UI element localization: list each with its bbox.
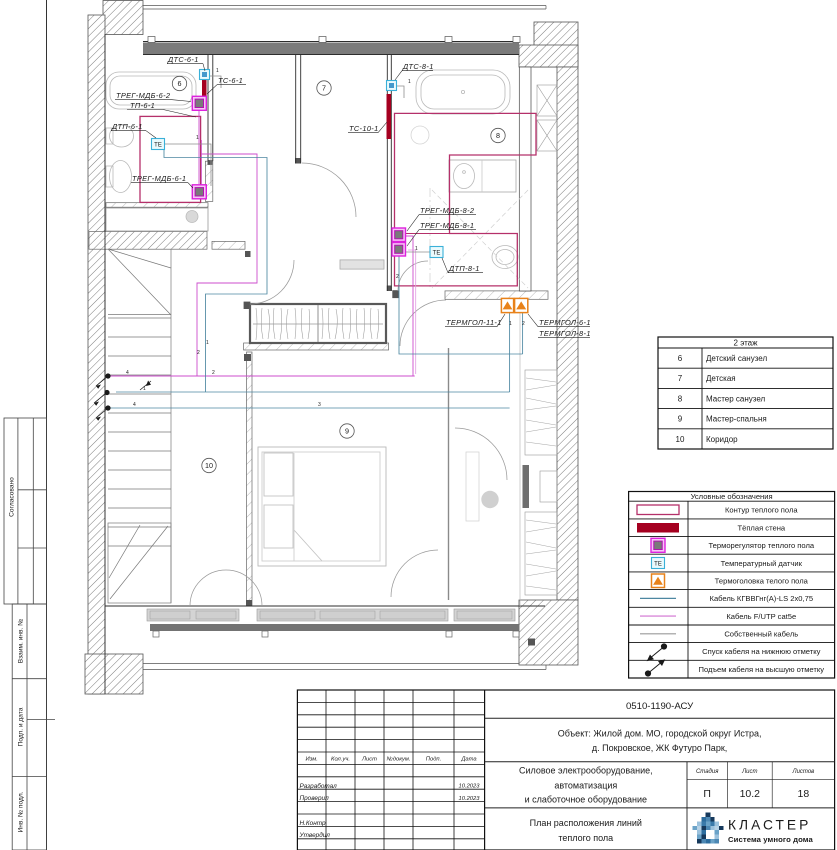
svg-text:Мастер санузел: Мастер санузел (706, 394, 766, 403)
svg-text:Детская: Детская (706, 374, 736, 383)
svg-text:ТЕРМГОЛ-11-1: ТЕРМГОЛ-11-1 (446, 318, 502, 327)
svg-text:Собственный кабель: Собственный кабель (724, 630, 798, 639)
svg-text:Кабель F/UTP cat5e: Кабель F/UTP cat5e (726, 612, 796, 621)
svg-text:Подп. и дата: Подп. и дата (18, 707, 25, 746)
svg-text:4: 4 (126, 370, 129, 376)
svg-text:Контур теплого пола: Контур теплого пола (725, 506, 798, 515)
svg-text:10: 10 (676, 435, 685, 444)
svg-text:д. Покровское, ЖК Футуро Парк,: д. Покровское, ЖК Футуро Парк, (592, 743, 727, 753)
svg-text:ДТП-6-1: ДТП-6-1 (111, 122, 143, 131)
svg-text:1: 1 (509, 321, 512, 327)
svg-text:Лист: Лист (361, 757, 377, 763)
svg-text:2: 2 (396, 274, 399, 280)
svg-text:Спуск кабеля на нижнюю отметку: Спуск кабеля на нижнюю отметку (702, 647, 820, 656)
svg-text:ТРЕГ-МДБ-6-1: ТРЕГ-МДБ-6-1 (132, 174, 186, 183)
svg-text:0510-1190-АСУ: 0510-1190-АСУ (626, 701, 694, 712)
svg-text:7: 7 (678, 374, 683, 383)
svg-text:Листов: Листов (791, 769, 814, 775)
svg-text:Силовое электрооборудование,: Силовое электрооборудование, (519, 766, 653, 776)
svg-text:ТРЕГ-МДБ-6-2: ТРЕГ-МДБ-6-2 (116, 91, 170, 100)
svg-text:Дата: Дата (460, 757, 477, 763)
svg-text:теплого пола: теплого пола (558, 833, 613, 843)
svg-text:Коридор: Коридор (706, 435, 738, 444)
svg-text:TE: TE (654, 562, 662, 568)
svg-text:Мастер-спальня: Мастер-спальня (706, 415, 767, 424)
svg-text:План расположения линий: План расположения линий (530, 818, 642, 828)
svg-text:ТЕРМГОЛ-6-1: ТЕРМГОЛ-6-1 (539, 318, 591, 327)
svg-text:6: 6 (178, 79, 182, 88)
svg-text:Температурный датчик: Температурный датчик (721, 559, 803, 568)
svg-text:10: 10 (205, 461, 213, 470)
svg-text:автоматизация: автоматизация (554, 780, 617, 790)
svg-text:TE: TE (154, 143, 162, 149)
svg-text:Объект: Жилой дом. МО, городск: Объект: Жилой дом. МО, городской округ И… (558, 728, 762, 738)
svg-text:ТС-6-1: ТС-6-1 (218, 76, 243, 85)
svg-text:10.2023: 10.2023 (459, 796, 481, 802)
svg-text:№докум.: №докум. (387, 757, 411, 763)
svg-text:1: 1 (415, 246, 418, 252)
svg-text:ТРЕГ-МДБ-8-1: ТРЕГ-МДБ-8-1 (420, 221, 474, 230)
svg-text:18: 18 (798, 788, 810, 800)
svg-text:1: 1 (408, 79, 411, 85)
svg-text:ТС-10-1: ТС-10-1 (349, 124, 379, 133)
svg-text:ТЕРМГОЛ-8-1: ТЕРМГОЛ-8-1 (539, 329, 591, 338)
svg-text:Подъем кабеля на высшую отметк: Подъем кабеля на высшую отметку (698, 665, 824, 674)
svg-text:7: 7 (322, 84, 326, 93)
svg-text:Тёплая стена: Тёплая стена (737, 523, 785, 532)
svg-text:ТРЕГ-МДБ-8-2: ТРЕГ-МДБ-8-2 (420, 206, 474, 215)
svg-text:2: 2 (522, 321, 525, 327)
svg-text:Стадия: Стадия (696, 769, 719, 775)
svg-text:Согласовано: Согласовано (9, 477, 16, 517)
svg-text:и слаботочное оборудование: и слаботочное оборудование (525, 795, 647, 805)
svg-text:ДТС-8-1: ДТС-8-1 (402, 62, 434, 71)
svg-text:1: 1 (216, 68, 219, 74)
svg-text:Н.Контр: Н.Контр (300, 820, 326, 827)
svg-text:9: 9 (678, 415, 683, 424)
svg-text:Утвердил: Утвердил (299, 831, 331, 839)
svg-text:8: 8 (678, 394, 683, 403)
svg-text:Инв. № подл.: Инв. № подл. (18, 791, 25, 832)
svg-text:8: 8 (496, 131, 500, 140)
svg-text:Кабель КГВВГнг(А)-LS 2х0,75: Кабель КГВВГнг(А)-LS 2х0,75 (710, 594, 814, 603)
svg-text:3: 3 (318, 402, 321, 408)
svg-text:Изм.: Изм. (306, 757, 318, 763)
svg-text:Условные обозначения: Условные обозначения (691, 492, 773, 501)
svg-text:4: 4 (133, 402, 136, 408)
svg-text:ДТП-8-1: ДТП-8-1 (448, 264, 480, 273)
svg-text:2 этаж: 2 этаж (734, 339, 759, 348)
svg-text:10.2: 10.2 (740, 788, 761, 800)
svg-text:1: 1 (196, 135, 199, 141)
svg-text:10.2023: 10.2023 (459, 783, 481, 789)
svg-text:Проверил: Проверил (300, 795, 330, 802)
svg-text:ТП-6-1: ТП-6-1 (130, 101, 155, 110)
svg-text:Система умного дома: Система умного дома (728, 835, 813, 844)
svg-text:TE: TE (433, 251, 441, 257)
svg-text:Лист: Лист (741, 769, 757, 775)
svg-text:КЛАСТЕР: КЛАСТЕР (728, 818, 811, 833)
svg-text:2: 2 (197, 350, 200, 356)
svg-text:Детский санузел: Детский санузел (706, 354, 767, 363)
svg-text:Кол.уч.: Кол.уч. (331, 757, 350, 763)
svg-text:Взаим. инв. №: Взаим. инв. № (18, 619, 25, 664)
svg-text:2: 2 (212, 370, 215, 376)
svg-text:Терморегулятор теплого пола: Терморегулятор теплого пола (708, 541, 814, 550)
svg-text:1: 1 (206, 340, 209, 346)
svg-text:Термоголовка телого пола: Термоголовка телого пола (715, 576, 809, 585)
svg-text:6: 6 (678, 354, 683, 363)
svg-text:9: 9 (345, 427, 349, 436)
svg-text:П: П (703, 788, 711, 800)
svg-text:1: 1 (143, 386, 146, 392)
svg-text:Разработал: Разработал (300, 782, 338, 790)
svg-text:Подп.: Подп. (426, 757, 441, 763)
svg-text:ДТС-6-1: ДТС-6-1 (167, 55, 199, 64)
